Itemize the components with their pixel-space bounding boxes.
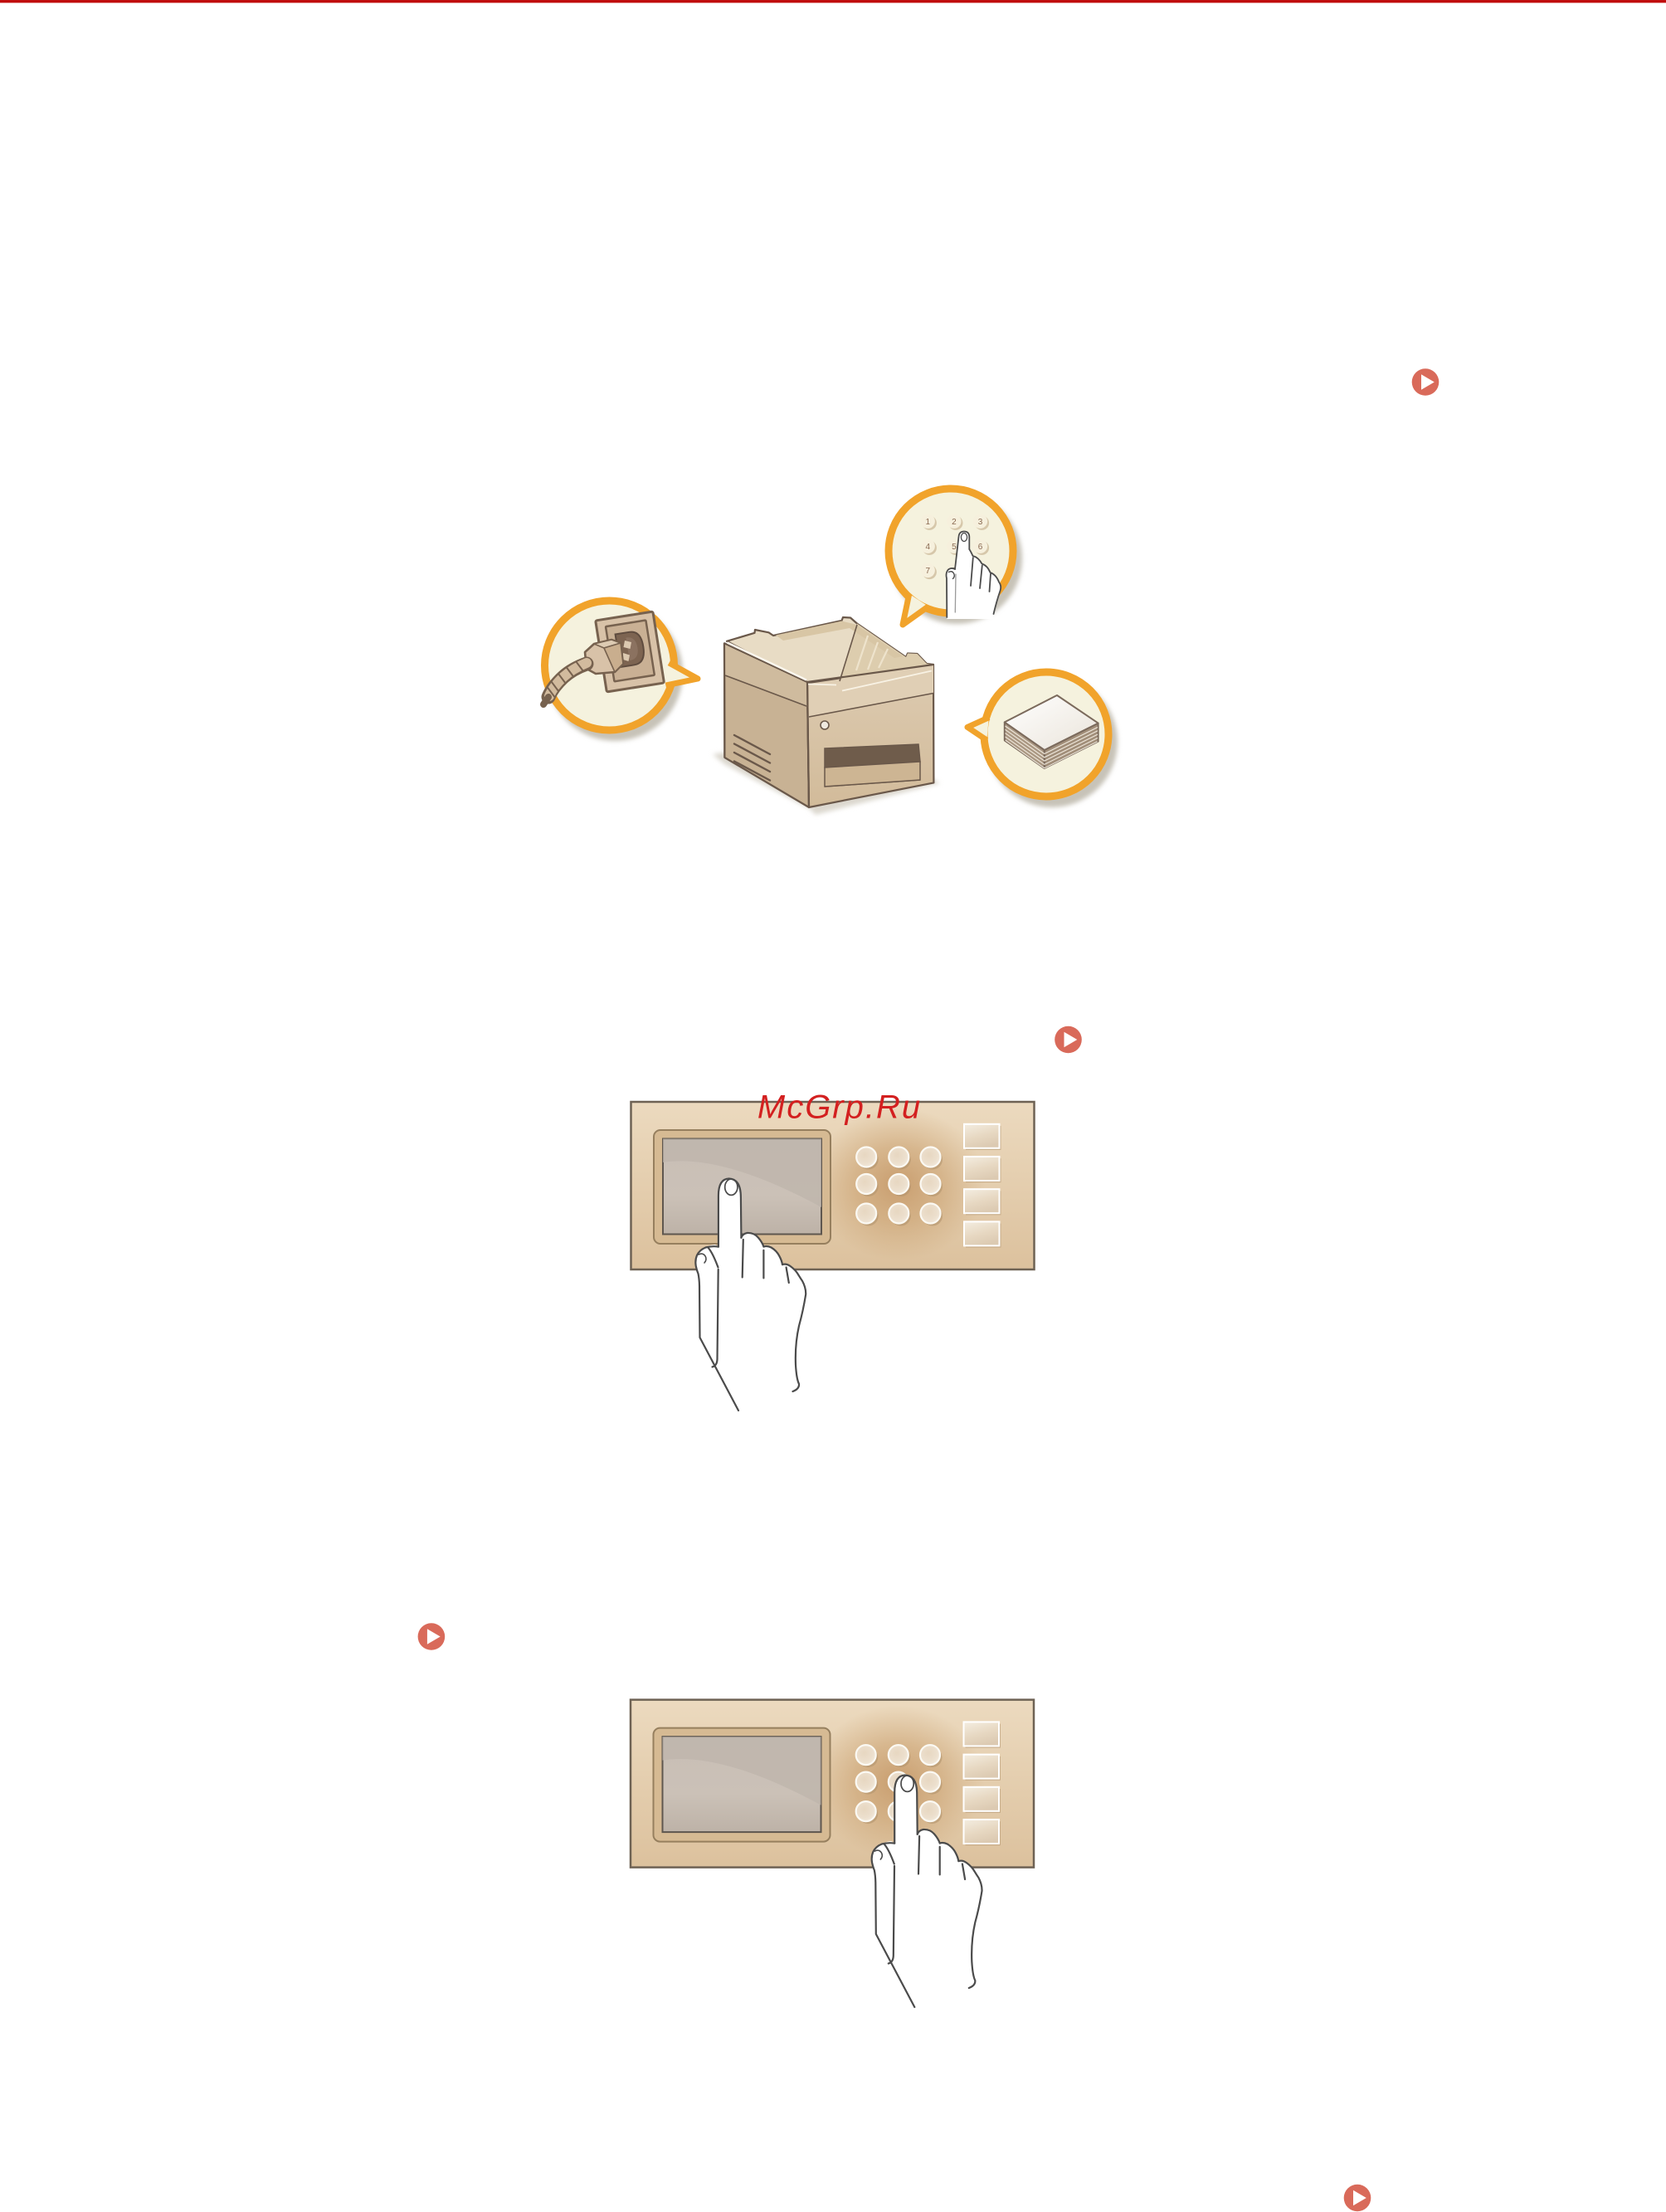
svg-text:3: 3 — [978, 518, 983, 527]
svg-text:2: 2 — [952, 518, 957, 527]
svg-text:4: 4 — [926, 543, 931, 552]
svg-text:McGrp.Ru: McGrp.Ru — [757, 1089, 922, 1126]
svg-text:5: 5 — [952, 543, 957, 552]
svg-text:7: 7 — [926, 567, 931, 576]
svg-text:6: 6 — [978, 543, 983, 552]
svg-text:1: 1 — [926, 518, 931, 527]
